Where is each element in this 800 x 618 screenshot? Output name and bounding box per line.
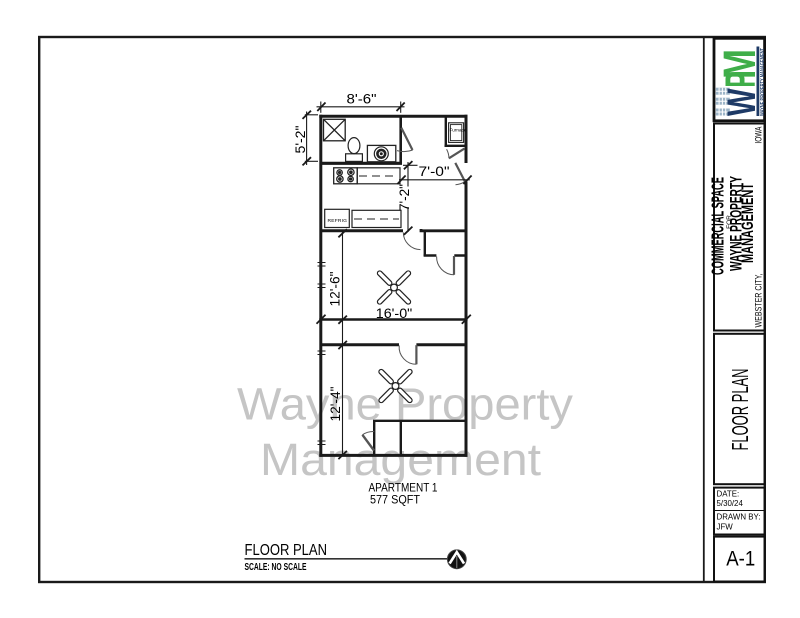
svg-text:7'-2": 7'-2": [397, 184, 412, 211]
svg-text:12'-4": 12'-4": [328, 386, 343, 421]
svg-text:8'-6": 8'-6": [347, 92, 377, 107]
svg-text:FLOOR PLAN: FLOOR PLAN: [727, 369, 753, 451]
svg-text:REFRIG: REFRIG: [328, 218, 348, 224]
svg-text:Furnace: Furnace: [450, 128, 467, 133]
svg-text:5/30/24: 5/30/24: [717, 499, 744, 508]
svg-text:WAYNE PROPERTY MANAGEMENT: WAYNE PROPERTY MANAGEMENT: [760, 48, 766, 116]
svg-text:16'-0": 16'-0": [376, 306, 413, 321]
svg-text:7'-0": 7'-0": [419, 164, 450, 179]
svg-text:MANAGEMENT: MANAGEMENT: [739, 183, 757, 263]
svg-text:12'-6": 12'-6": [328, 271, 343, 306]
svg-text:COMMERCIAL SPACE: COMMERCIAL SPACE: [708, 177, 728, 275]
svg-text:A-1: A-1: [726, 548, 755, 571]
svg-text:SCALE: NO SCALE: SCALE: NO SCALE: [245, 562, 307, 573]
svg-text:WEBSTER CITY,: WEBSTER CITY,: [754, 274, 764, 328]
svg-text:5'-2": 5'-2": [293, 125, 308, 153]
svg-text:IOWA: IOWA: [754, 127, 764, 144]
svg-text:FLOOR PLAN: FLOOR PLAN: [245, 542, 328, 559]
svg-text:DRAWN BY:: DRAWN BY:: [717, 512, 761, 521]
svg-text:JFW: JFW: [717, 522, 734, 531]
svg-text:577 SQFT: 577 SQFT: [370, 493, 421, 507]
svg-text:DATE:: DATE:: [717, 489, 740, 498]
